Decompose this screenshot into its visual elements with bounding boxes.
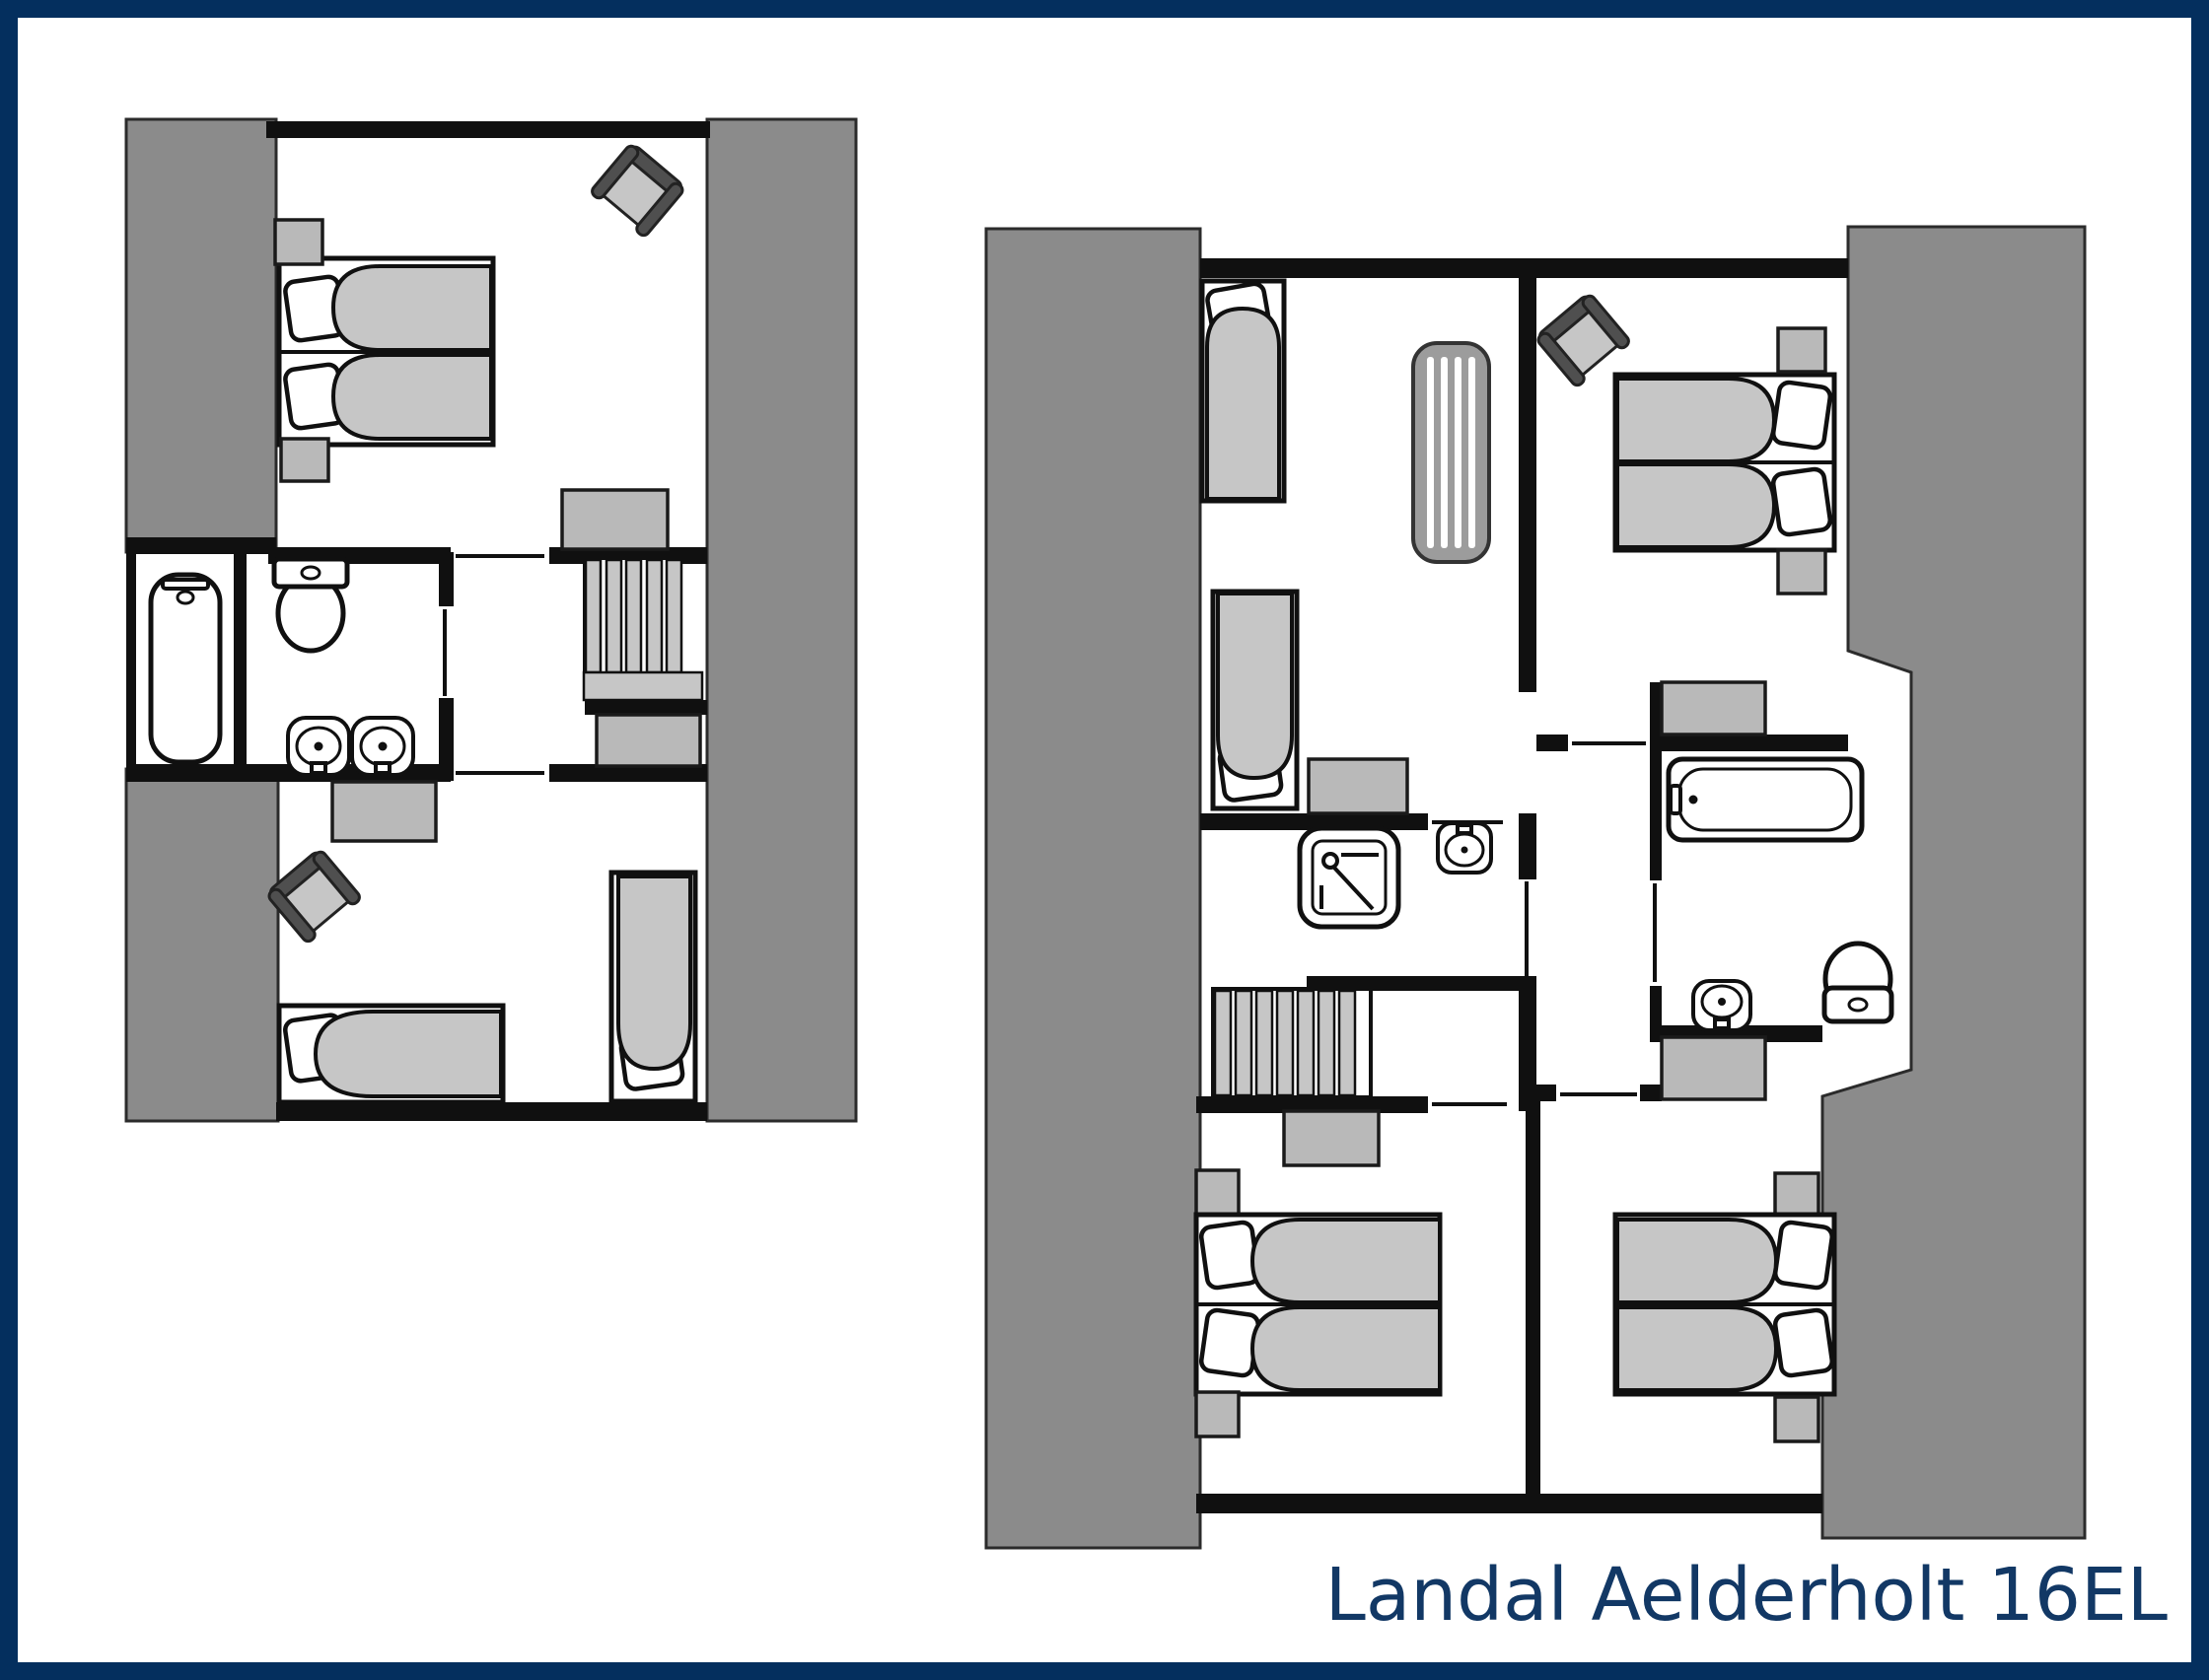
roof-band-right	[707, 119, 856, 1121]
washbasin-icon	[1438, 823, 1491, 873]
bathtub-icon	[151, 575, 220, 762]
nightstand-icon	[1196, 1392, 1239, 1436]
single-bed-icon	[1213, 592, 1297, 808]
nightstand-icon	[281, 439, 328, 481]
nightstand-icon	[1778, 328, 1825, 372]
nightstand-icon	[275, 220, 322, 264]
toilet-icon	[1824, 944, 1891, 1021]
roof-band-left	[986, 229, 1200, 1548]
stairs-icon	[584, 558, 702, 700]
roof-band-left-top	[126, 119, 276, 552]
stairs-icon	[1213, 989, 1371, 1097]
nightstand-icon	[1775, 1173, 1818, 1218]
dresser-icon	[332, 782, 436, 841]
roof-band-left-bottom	[126, 769, 278, 1121]
double-bed-icon	[1615, 375, 1834, 550]
plan-title: Landal Aelderholt 16EL	[1325, 1558, 2168, 1635]
nightstand-icon	[1775, 1397, 1818, 1441]
bathtub-icon	[1669, 759, 1862, 840]
double-bed-icon	[1196, 1215, 1440, 1394]
washbasin-icon	[288, 718, 349, 775]
nightstand-icon	[1196, 1170, 1239, 1215]
single-bed-icon	[611, 873, 695, 1101]
plan-upper-floor	[126, 119, 856, 1121]
floorplan-page: Landal Aelderholt 16EL	[0, 0, 2209, 1680]
roof-band-right	[1822, 227, 2085, 1538]
double-bed-icon	[1615, 1215, 1834, 1394]
single-bed-icon	[279, 1006, 503, 1102]
chair-icon	[590, 142, 686, 238]
cabinet-icon	[1662, 682, 1765, 735]
single-bed-icon	[1202, 281, 1284, 501]
washbasin-icon	[1693, 981, 1750, 1030]
dresser-icon	[1284, 1111, 1379, 1165]
dresser-icon	[562, 490, 668, 549]
wardrobe-icon	[597, 715, 700, 766]
cot-icon	[1413, 343, 1489, 562]
floorplan-drawing	[0, 0, 2209, 1680]
toilet-icon	[274, 559, 347, 651]
nightstand-icon	[1309, 759, 1407, 813]
chair-icon	[265, 848, 362, 944]
plan-main-floor	[986, 227, 2085, 1548]
dresser-icon	[1662, 1037, 1765, 1099]
shower-icon	[1300, 828, 1398, 927]
nightstand-icon	[1778, 550, 1825, 594]
washbasin-icon	[352, 718, 413, 775]
double-bed-icon	[279, 258, 493, 445]
